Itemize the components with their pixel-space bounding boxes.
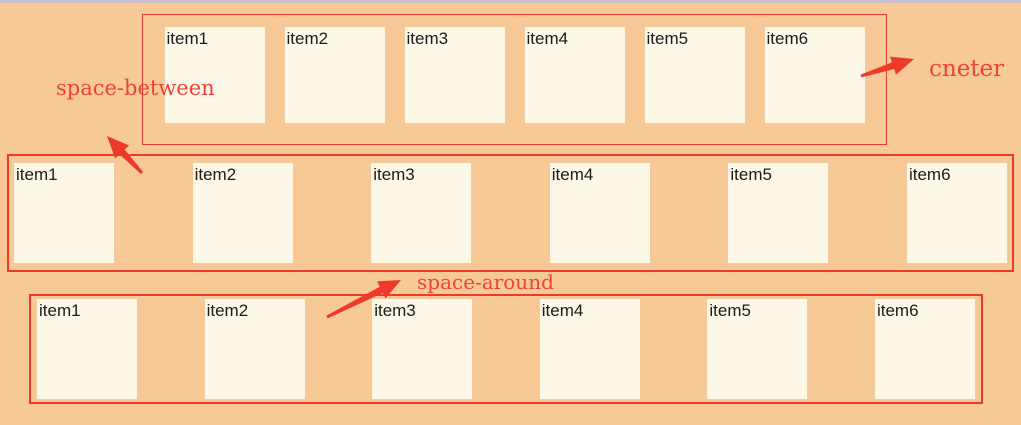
space-around-label: space-around [417,270,554,294]
center-label: cneter [929,56,1004,82]
flex-item: item4 [525,27,625,123]
flex-item: item5 [728,163,828,263]
flex-item: item2 [193,163,293,263]
flex-item: item6 [765,27,865,123]
space-around-container: item1item2item3item4item5item6 [29,294,983,404]
window-top-edge [0,0,1021,3]
flex-item: item3 [372,299,472,399]
flex-item: item6 [875,299,975,399]
flex-item: item2 [285,27,385,123]
flex-item: item2 [205,299,305,399]
flex-item: item3 [405,27,505,123]
flex-item: item5 [645,27,745,123]
flex-item: item1 [165,27,265,123]
space-between-container: item1item2item3item4item5item6 [7,154,1014,272]
center-container: item1item2item3item4item5item6 [142,14,887,145]
space-between-label: space-between [56,76,215,100]
flex-item: item4 [540,299,640,399]
flex-item: item5 [707,299,807,399]
page: item1item2item3item4item5item6 item1item… [0,0,1021,425]
flex-item: item3 [371,163,471,263]
flex-item: item1 [14,163,114,263]
flex-item: item6 [907,163,1007,263]
flex-item: item1 [37,299,137,399]
flex-item: item4 [550,163,650,263]
